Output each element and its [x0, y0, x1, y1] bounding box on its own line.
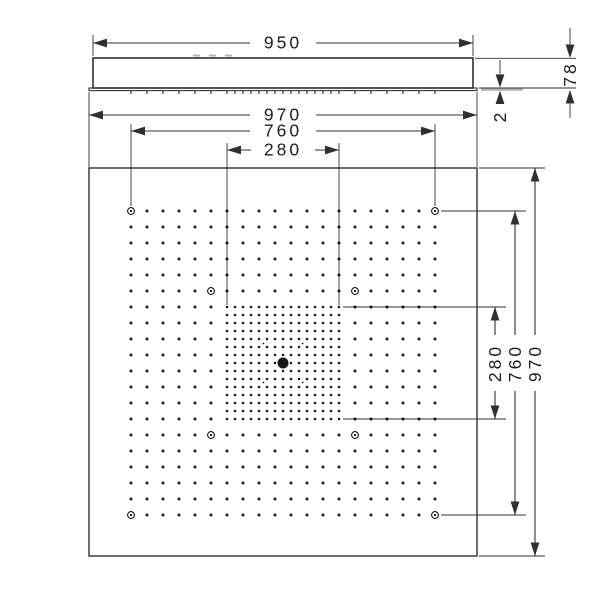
spray-plate-profile	[89, 88, 477, 91]
nozzle-dot	[386, 290, 389, 293]
nozzle-dot	[130, 434, 133, 437]
nozzle-dot	[402, 514, 405, 517]
nozzle-dot	[386, 482, 389, 485]
nozzle-dot	[402, 498, 405, 501]
screw-fitting-center-dot	[434, 514, 436, 516]
nozzle-dot	[418, 322, 421, 325]
dim-78-label: 78	[560, 61, 580, 86]
nozzle-dot	[402, 354, 405, 357]
top-fitting-mark	[193, 55, 200, 57]
nozzle-dot	[146, 482, 149, 485]
nozzle-dot	[130, 274, 133, 277]
dense-nozzle-dot	[282, 386, 285, 389]
dense-nozzle-dot	[258, 378, 261, 381]
nozzle-dot	[130, 386, 133, 389]
dense-nozzle-dot	[258, 418, 261, 421]
dense-nozzle-dot	[338, 402, 341, 405]
dense-nozzle-dot	[322, 346, 325, 349]
dense-nozzle-dot	[274, 378, 277, 381]
nozzle-dot	[194, 242, 197, 245]
top-fitting-marks	[193, 55, 232, 57]
nozzle-dot	[146, 434, 149, 437]
nozzle-dot	[146, 450, 149, 453]
dense-nozzle-dot	[242, 370, 245, 373]
dense-nozzle-dot	[226, 418, 229, 421]
center-outlet-dot	[278, 358, 289, 369]
nozzle-dot	[146, 370, 149, 373]
nozzle-dot	[130, 482, 133, 485]
dense-nozzle-dot	[290, 394, 293, 397]
dense-nozzle-dot	[266, 378, 269, 381]
nozzle-dot	[130, 226, 133, 229]
dense-nozzle-dot	[226, 362, 229, 365]
dense-nozzle-dot	[250, 338, 253, 341]
dense-nozzle-dot	[314, 410, 317, 413]
nozzle-dot	[210, 306, 213, 309]
nozzle-dot	[274, 498, 277, 501]
dimension-78-height: 78	[475, 28, 580, 118]
nozzle-dot	[290, 466, 293, 469]
nozzle-dot	[242, 434, 245, 437]
nozzle-dot	[162, 274, 165, 277]
dense-nozzle-dot	[258, 386, 261, 389]
dense-nozzle-dot	[330, 330, 333, 333]
nozzle-dot	[194, 514, 197, 517]
dense-nozzle-dot	[282, 378, 285, 381]
dense-nozzle-dot	[226, 386, 229, 389]
nozzle-dot	[130, 242, 133, 245]
nozzle-dot	[386, 418, 389, 421]
dense-nozzle-dot	[314, 354, 317, 357]
nozzle-dot	[194, 482, 197, 485]
nozzle-dot	[258, 210, 261, 213]
nozzle-dot	[354, 450, 357, 453]
nozzle-dot	[274, 242, 277, 245]
nozzle-dot	[146, 258, 149, 261]
dense-nozzle-dot	[250, 354, 253, 357]
nozzle-tick	[162, 91, 163, 94]
nozzle-dot	[242, 498, 245, 501]
nozzle-dot	[354, 418, 357, 421]
nozzle-dot	[434, 418, 437, 421]
dense-nozzle-dot	[314, 338, 317, 341]
nozzle-dot	[290, 274, 293, 277]
dense-nozzle-dot	[330, 402, 333, 405]
micro-jet-dot	[263, 382, 265, 384]
screw-fitting-center-dot	[210, 290, 212, 292]
nozzle-tick	[330, 91, 331, 94]
nozzle-dot	[306, 514, 309, 517]
nozzle-dot	[178, 274, 181, 277]
dense-nozzle-dot	[338, 322, 341, 325]
dim-970-v-label: 970	[525, 344, 545, 382]
nozzle-dot	[146, 338, 149, 341]
nozzle-dot	[162, 482, 165, 485]
nozzle-dot	[370, 418, 373, 421]
nozzle-dot	[306, 242, 309, 245]
nozzle-dot	[338, 274, 341, 277]
nozzle-dot	[194, 338, 197, 341]
nozzle-dot	[386, 514, 389, 517]
nozzle-dot	[402, 370, 405, 373]
nozzle-dot	[194, 450, 197, 453]
dense-nozzle-dot	[330, 370, 333, 373]
nozzle-dot	[338, 482, 341, 485]
nozzle-dot	[354, 482, 357, 485]
arrow-up	[511, 211, 520, 225]
nozzle-dot	[274, 210, 277, 213]
nozzle-dot	[242, 226, 245, 229]
dense-nozzle-dot	[266, 346, 269, 349]
nozzle-dot	[434, 434, 437, 437]
dense-nozzle-dot	[242, 386, 245, 389]
nozzle-dot	[194, 210, 197, 213]
dense-nozzle-dot	[290, 346, 293, 349]
nozzle-dot	[322, 466, 325, 469]
dense-nozzle-dot	[242, 330, 245, 333]
dense-nozzle-dot	[274, 370, 277, 373]
dense-nozzle-dot	[226, 322, 229, 325]
nozzle-dot	[434, 274, 437, 277]
dense-nozzle-dot	[234, 378, 237, 381]
screw-fitting-center-dot	[354, 290, 356, 292]
arrow-down	[511, 502, 520, 516]
dense-nozzle-dot	[242, 354, 245, 357]
nozzle-dot	[226, 482, 229, 485]
nozzle-dot	[162, 434, 165, 437]
dense-nozzle-dot	[282, 402, 285, 405]
dense-nozzle-dot	[338, 306, 341, 309]
dense-nozzle-dot	[234, 386, 237, 389]
dense-nozzle-dot	[274, 418, 277, 421]
dense-nozzle-dot	[274, 402, 277, 405]
dim-760-label: 760	[264, 121, 302, 141]
dense-nozzle-dot	[282, 346, 285, 349]
dense-nozzle-dot	[242, 410, 245, 413]
nozzle-dot	[402, 338, 405, 341]
nozzle-dot	[434, 258, 437, 261]
nozzle-tick	[402, 91, 403, 94]
nozzle-dot	[162, 226, 165, 229]
nozzle-dot	[146, 466, 149, 469]
dense-nozzle-dot	[322, 354, 325, 357]
nozzle-dot	[322, 450, 325, 453]
dense-nozzle-dot	[242, 306, 245, 309]
nozzle-dot	[354, 338, 357, 341]
dense-nozzle-dot	[330, 394, 333, 397]
nozzle-dot	[354, 354, 357, 357]
nozzle-dot	[146, 290, 149, 293]
nozzle-dot	[194, 370, 197, 373]
nozzle-dot	[194, 226, 197, 229]
nozzle-dot	[210, 210, 213, 213]
nozzle-dot	[370, 402, 373, 405]
nozzle-dot	[306, 226, 309, 229]
dense-nozzle-dot	[322, 306, 325, 309]
screw-fitting-center-dot	[130, 514, 132, 516]
nozzle-dot	[338, 242, 341, 245]
nozzle-dot	[162, 402, 165, 405]
nozzle-tick	[386, 91, 387, 94]
nozzle-dot	[434, 290, 437, 293]
nozzle-dot	[194, 498, 197, 501]
nozzle-dot	[386, 354, 389, 357]
dense-nozzle-dot	[282, 306, 285, 309]
dense-nozzle-dot	[338, 410, 341, 413]
dense-nozzle-dot	[330, 418, 333, 421]
nozzle-dot	[290, 258, 293, 261]
dense-nozzle-dot	[250, 330, 253, 333]
dense-nozzle-dot	[330, 322, 333, 325]
dense-nozzle-dot	[306, 410, 309, 413]
nozzle-dot	[178, 226, 181, 229]
nozzle-dot	[290, 482, 293, 485]
nozzle-dot	[178, 210, 181, 213]
micro-jet-dot	[302, 382, 304, 384]
arrow-down	[496, 74, 505, 87]
nozzle-dot	[210, 242, 213, 245]
nozzle-dot	[306, 210, 309, 213]
dense-nozzle-dot	[330, 362, 333, 365]
nozzle-dot	[434, 242, 437, 245]
dense-nozzle-dot	[338, 386, 341, 389]
nozzle-tick	[290, 91, 291, 94]
dense-nozzle-dot	[282, 418, 285, 421]
nozzle-dot	[194, 306, 197, 309]
nozzle-dot	[322, 210, 325, 213]
nozzle-dot	[386, 402, 389, 405]
nozzle-dot	[370, 322, 373, 325]
nozzle-dot	[274, 290, 277, 293]
dense-nozzle-dot	[306, 370, 309, 373]
nozzle-dot	[322, 290, 325, 293]
dense-nozzle-dot	[298, 402, 301, 405]
dense-nozzle-dot	[314, 346, 317, 349]
dense-nozzle-dot	[306, 402, 309, 405]
dense-nozzle-dot	[306, 394, 309, 397]
nozzle-dot	[370, 482, 373, 485]
dense-nozzle-dot	[250, 394, 253, 397]
dense-nozzle-dot	[258, 362, 261, 365]
nozzle-dot	[418, 402, 421, 405]
nozzle-dot	[322, 434, 325, 437]
dense-nozzle-dot	[314, 378, 317, 381]
nozzle-dot	[418, 258, 421, 261]
side-elevation	[89, 55, 576, 94]
shower-dimension-drawing: 950 970 78 2 760	[0, 0, 616, 600]
dense-nozzle-dot	[290, 354, 293, 357]
dense-nozzle-dot	[258, 306, 261, 309]
dense-nozzle-dot	[298, 306, 301, 309]
arrow-up	[491, 307, 500, 321]
dense-nozzle-dot	[330, 386, 333, 389]
dimension-2-plate-edge: 2	[490, 60, 510, 122]
nozzle-dot	[418, 210, 421, 213]
dense-nozzle-dot	[322, 338, 325, 341]
dense-nozzle-dot	[234, 354, 237, 357]
dense-nozzle-dot	[330, 306, 333, 309]
dense-nozzle-dot	[282, 354, 285, 357]
dense-nozzle-dot	[298, 410, 301, 413]
dense-nozzle-dot	[274, 394, 277, 397]
dense-nozzle-dot	[322, 418, 325, 421]
dense-nozzle-dot	[338, 394, 341, 397]
dense-nozzle-dot	[226, 354, 229, 357]
nozzle-dot	[402, 226, 405, 229]
dense-nozzle-dot	[290, 322, 293, 325]
nozzle-dot	[274, 226, 277, 229]
dense-nozzle-dot	[282, 370, 285, 373]
dense-nozzle-dot	[274, 386, 277, 389]
nozzle-dot	[162, 322, 165, 325]
dense-nozzle-dot	[314, 386, 317, 389]
nozzle-dot	[146, 498, 149, 501]
dense-nozzle-dot	[306, 338, 309, 341]
shower-body-profile	[93, 58, 473, 88]
nozzle-dot	[178, 258, 181, 261]
dense-nozzle-dot	[314, 330, 317, 333]
nozzle-dot	[226, 258, 229, 261]
nozzle-dot	[434, 466, 437, 469]
nozzle-dot	[290, 290, 293, 293]
nozzle-dot	[322, 242, 325, 245]
nozzle-dot	[402, 242, 405, 245]
dense-nozzle-dot	[274, 306, 277, 309]
dense-nozzle-dot	[290, 338, 293, 341]
nozzle-dot	[194, 466, 197, 469]
nozzle-dot	[162, 290, 165, 293]
nozzle-dot	[402, 290, 405, 293]
dense-nozzle-dot	[234, 322, 237, 325]
nozzle-dot	[146, 242, 149, 245]
nozzle-dot	[354, 498, 357, 501]
dense-nozzle-dot	[234, 306, 237, 309]
nozzle-dot	[434, 482, 437, 485]
dimension-950-top-width: 950	[93, 33, 473, 56]
dense-nozzle-dot	[322, 410, 325, 413]
nozzle-dot	[178, 242, 181, 245]
nozzle-dot	[370, 386, 373, 389]
dense-nozzle-dot	[330, 354, 333, 357]
nozzle-tick	[146, 91, 147, 94]
nozzle-dot	[418, 466, 421, 469]
dense-nozzle-dot	[266, 306, 269, 309]
nozzle-dot	[146, 306, 149, 309]
arrow-up	[566, 90, 575, 104]
nozzle-dot	[146, 418, 149, 421]
dense-nozzle-dot	[266, 314, 269, 317]
dense-nozzle-dot	[242, 378, 245, 381]
dense-nozzle-dot	[282, 338, 285, 341]
nozzle-dot	[418, 274, 421, 277]
nozzle-dot	[146, 402, 149, 405]
nozzle-dot	[194, 354, 197, 357]
nozzle-dot	[386, 258, 389, 261]
nozzle-dot	[434, 354, 437, 357]
nozzle-dot	[386, 226, 389, 229]
nozzle-dot	[194, 386, 197, 389]
dense-nozzle-dot	[306, 306, 309, 309]
screw-fitting-center-dot	[130, 210, 132, 212]
nozzle-dot	[434, 322, 437, 325]
nozzle-dot	[210, 498, 213, 501]
dense-nozzle-dot	[226, 378, 229, 381]
top-fitting-mark	[209, 55, 216, 57]
nozzle-dot	[418, 482, 421, 485]
dense-nozzle-dot	[338, 378, 341, 381]
nozzle-dot	[146, 274, 149, 277]
nozzle-dot	[242, 274, 245, 277]
nozzle-dot	[194, 434, 197, 437]
dense-nozzle-dot	[274, 410, 277, 413]
nozzle-tick	[418, 91, 419, 94]
nozzle-dot	[258, 450, 261, 453]
arrow-right	[421, 127, 435, 136]
dim-760-v-label: 760	[505, 344, 525, 382]
nozzle-dot	[386, 322, 389, 325]
nozzle-dot	[322, 514, 325, 517]
nozzle-dot	[274, 274, 277, 277]
technical-drawing-canvas: 950 970 78 2 760	[0, 0, 616, 600]
nozzle-dot	[338, 514, 341, 517]
nozzle-tick	[434, 91, 435, 94]
nozzle-dot	[386, 386, 389, 389]
arrow-down	[566, 45, 575, 59]
nozzle-dot	[306, 290, 309, 293]
nozzle-dot	[434, 306, 437, 309]
nozzle-tick	[274, 91, 275, 94]
nozzle-dot	[274, 434, 277, 437]
dense-nozzle-dot	[242, 346, 245, 349]
dense-nozzle-dot	[242, 362, 245, 365]
nozzle-dot	[306, 482, 309, 485]
nozzle-dot	[402, 386, 405, 389]
nozzle-dot	[130, 306, 133, 309]
dense-nozzle-dot	[266, 402, 269, 405]
nozzle-dot	[242, 210, 245, 213]
dense-nozzle-dot	[314, 314, 317, 317]
nozzle-dot	[210, 274, 213, 277]
nozzle-dot	[354, 226, 357, 229]
nozzle-dot	[370, 258, 373, 261]
nozzle-dot	[434, 226, 437, 229]
dim-280-v-label: 280	[485, 344, 505, 382]
nozzle-dot	[242, 242, 245, 245]
nozzle-dot	[162, 210, 165, 213]
dense-nozzle-dot	[338, 346, 341, 349]
nozzle-dot	[210, 466, 213, 469]
nozzle-dot	[402, 482, 405, 485]
dense-nozzle-dot	[338, 354, 341, 357]
nozzle-dot	[290, 514, 293, 517]
nozzle-tick	[338, 91, 339, 94]
dense-nozzle-dot	[226, 330, 229, 333]
dim-950-label: 950	[264, 33, 302, 53]
nozzle-dot	[370, 450, 373, 453]
dense-nozzle-dot	[250, 418, 253, 421]
dense-nozzle-dot	[338, 370, 341, 373]
nozzle-dot	[226, 498, 229, 501]
dense-nozzle-dot	[338, 314, 341, 317]
nozzle-dot	[210, 354, 213, 357]
nozzle-tick	[322, 91, 323, 94]
nozzle-tick	[298, 91, 299, 94]
dense-nozzle-dot	[282, 394, 285, 397]
nozzle-tick	[250, 91, 251, 94]
nozzle-dot	[402, 306, 405, 309]
nozzle-dot	[226, 210, 229, 213]
nozzle-dot	[146, 226, 149, 229]
